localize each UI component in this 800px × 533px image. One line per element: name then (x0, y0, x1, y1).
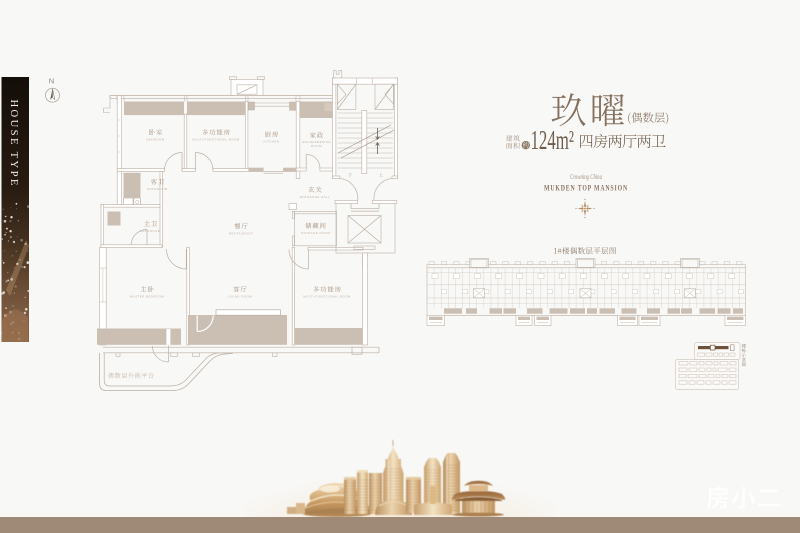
svg-text:MUKDEN TOP MANSION: MUKDEN TOP MANSION (544, 183, 628, 193)
svg-text:ENTRANCE HALL: ENTRANCE HALL (300, 195, 330, 199)
svg-text:RESTAURANT: RESTAURANT (229, 232, 253, 236)
svg-text:KITCHEN: KITCHEN (264, 140, 280, 144)
svg-text:STORAGE ROOM: STORAGE ROOM (301, 231, 331, 235)
svg-text:Crowning China: Crowning China (570, 173, 602, 181)
svg-text:BATHROOM: BATHROOM (140, 229, 160, 233)
svg-text:124m²: 124m² (531, 125, 575, 155)
svg-text:MASTER BEDROOM: MASTER BEDROOM (130, 295, 165, 299)
svg-text:MULTI-FUNCTIONAL ROOM: MULTI-FUNCTIONAL ROOM (192, 138, 239, 142)
svg-text:MULTI-FUNCTIONAL ROOM: MULTI-FUNCTIONAL ROOM (303, 295, 350, 299)
svg-text:HOUSE TYPE: HOUSE TYPE (8, 100, 19, 188)
svg-text:N: N (49, 77, 54, 86)
svg-text:BEDROOM: BEDROOM (146, 138, 164, 142)
svg-text:BATHROOM: BATHROOM (147, 187, 167, 191)
svg-text:ROOM: ROOM (311, 144, 322, 148)
svg-text:LIVING ROOM: LIVING ROOM (228, 295, 253, 299)
